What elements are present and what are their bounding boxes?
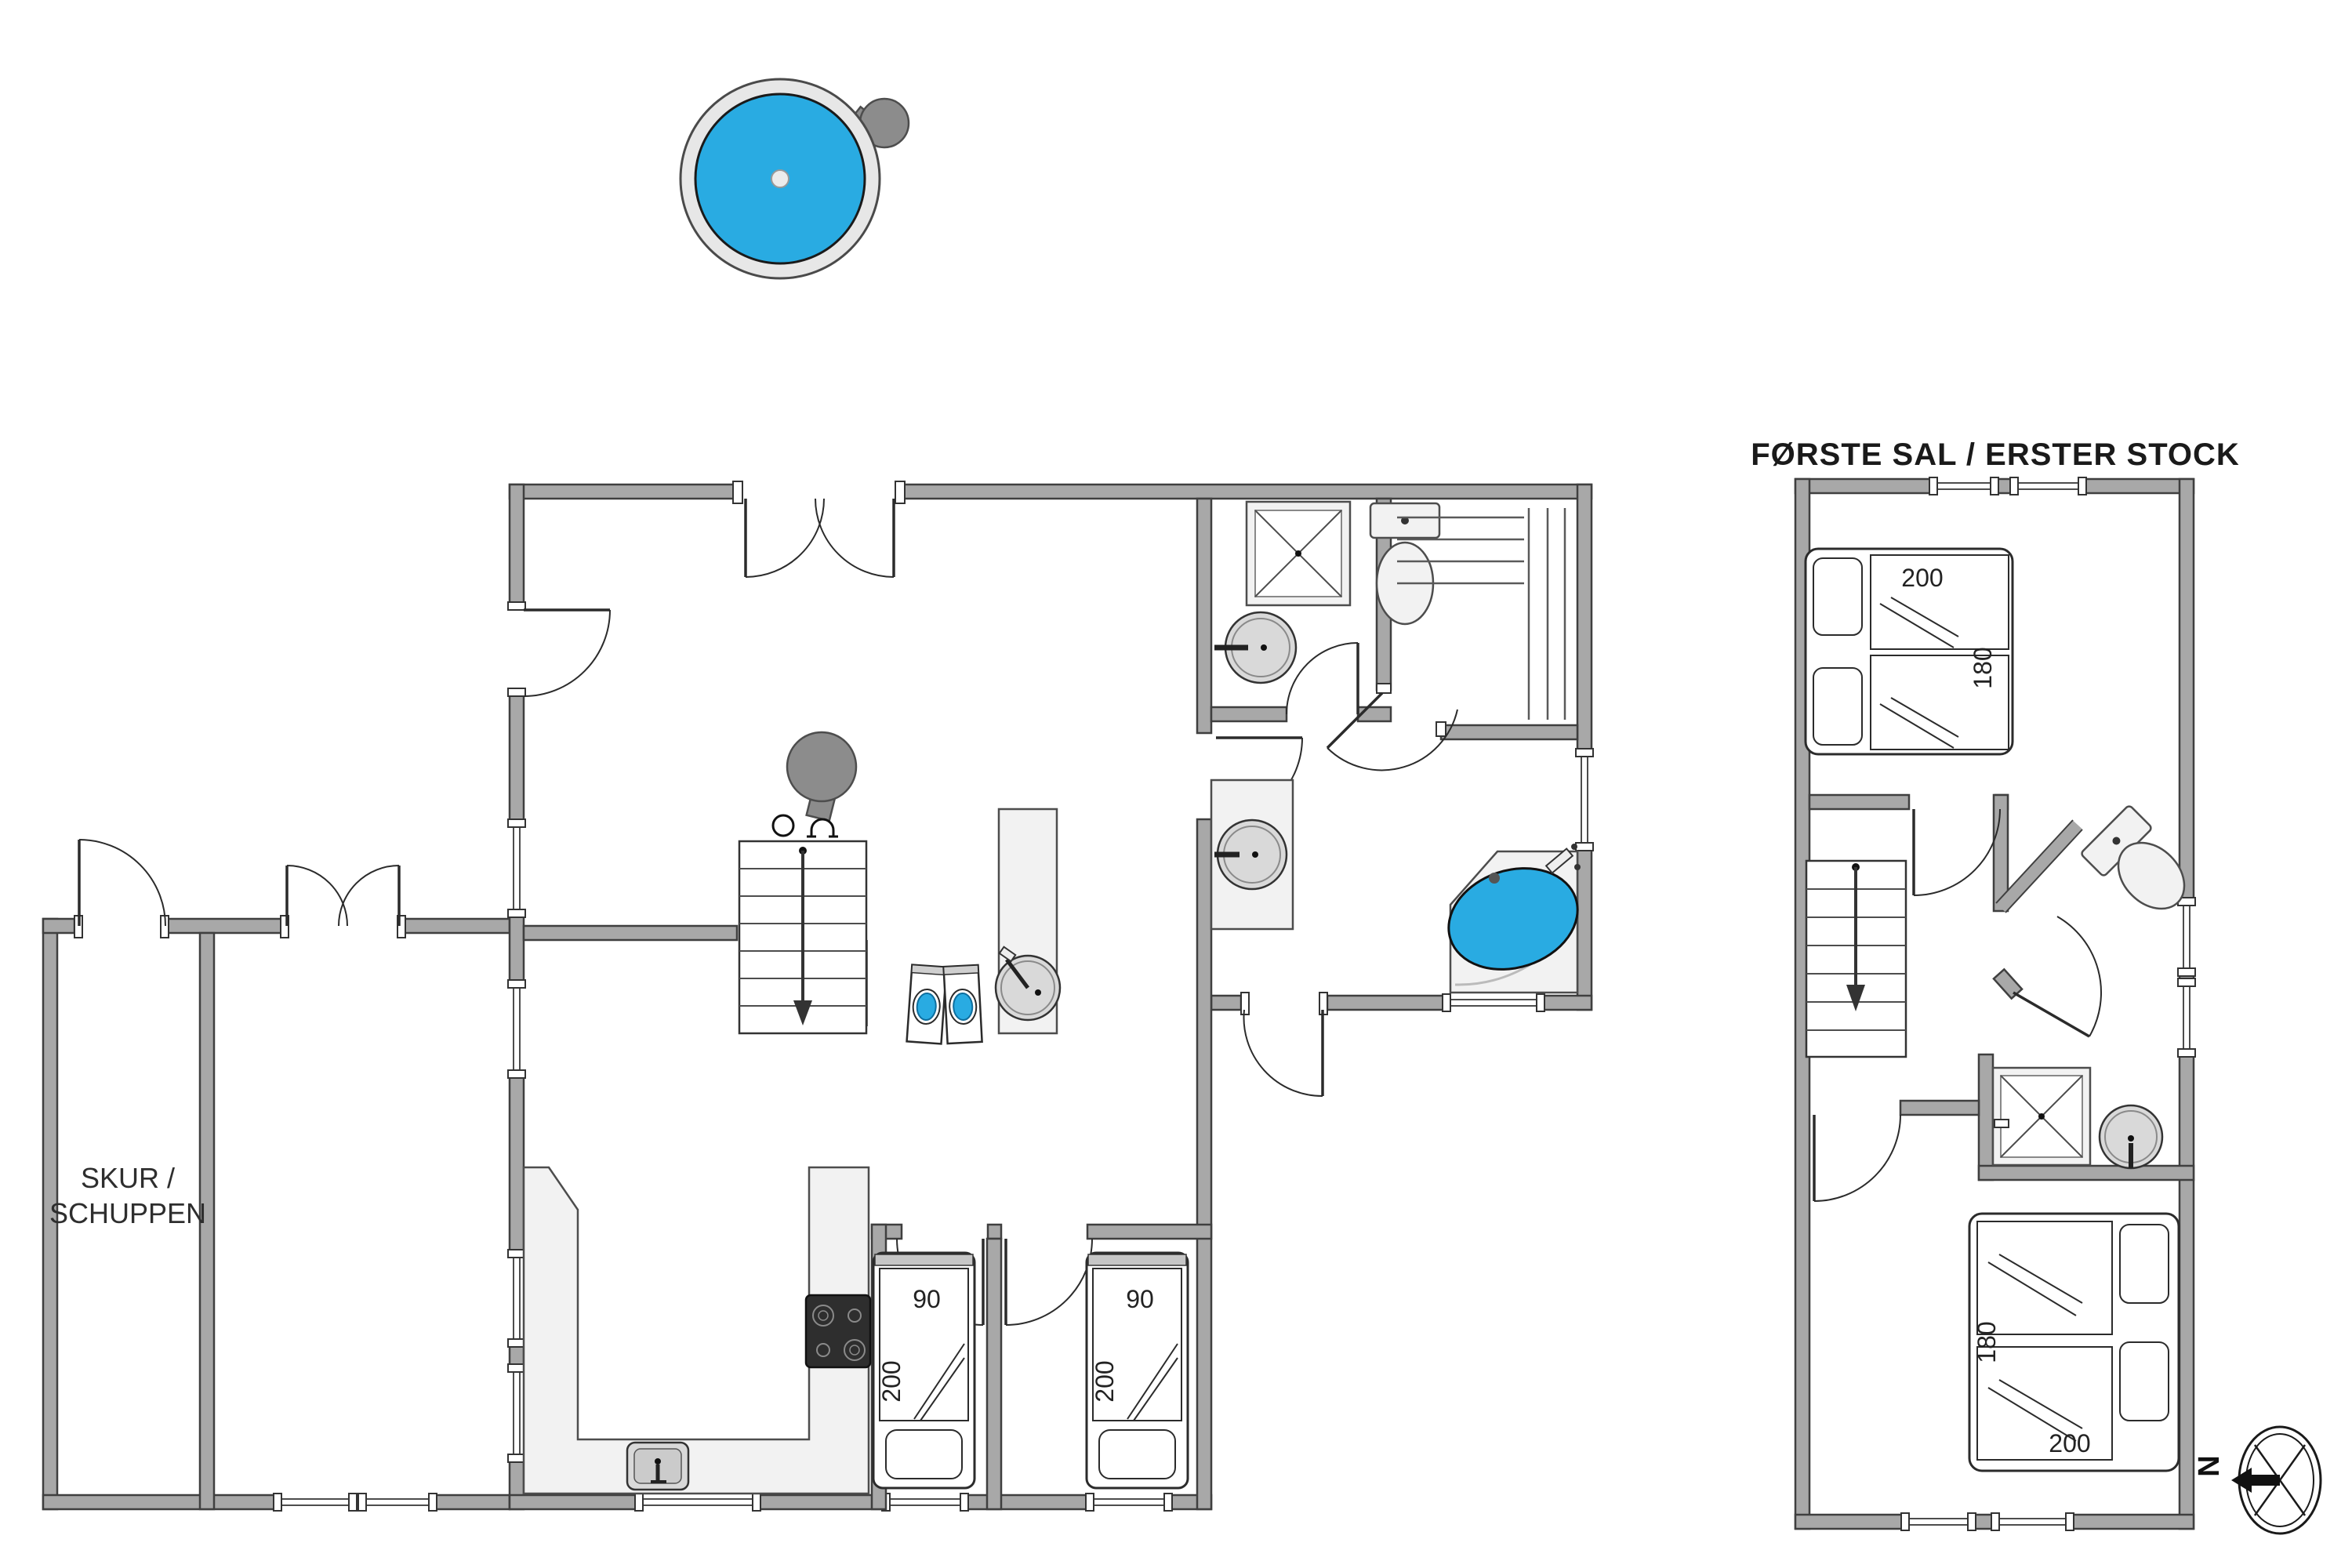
sink-bathroom-ground bbox=[1214, 612, 1296, 683]
sauna-door bbox=[1327, 684, 1457, 770]
bed-single-2: 90 200 bbox=[1087, 1253, 1188, 1488]
bath-wing-window-bottom bbox=[1443, 994, 1544, 1011]
bedroom1-window bbox=[882, 1494, 968, 1511]
upper-bottom-window-1 bbox=[1901, 1513, 1976, 1530]
left-window-2 bbox=[508, 980, 525, 1078]
upper-floor-plan: FØRSTE SAL / ERSTER STOCK bbox=[1751, 437, 2240, 1530]
washer-dryer bbox=[907, 965, 982, 1044]
compass-icon: N bbox=[2193, 1427, 2321, 1534]
left-window-4 bbox=[508, 1364, 525, 1462]
upper-bedroom3-door bbox=[1914, 809, 2000, 895]
bed2-width-label: 90 bbox=[1126, 1285, 1154, 1313]
island-counter bbox=[996, 809, 1060, 1033]
bed1-length-label: 200 bbox=[877, 1360, 906, 1402]
floorplan-canvas: SKUR / SCHUPPEN bbox=[0, 0, 2352, 1568]
bed4-width-label: 180 bbox=[1973, 1321, 2001, 1363]
cooktop bbox=[806, 1295, 870, 1367]
bath-wing-window-right bbox=[1576, 749, 1593, 851]
bed1-width-label: 90 bbox=[913, 1285, 941, 1313]
upper-floor-title: FØRSTE SAL / ERSTER STOCK bbox=[1751, 437, 2240, 472]
bed-double-4: 180 200 bbox=[1969, 1214, 2179, 1471]
upper-right-window-1 bbox=[2178, 898, 2195, 976]
upper-bottom-window-2 bbox=[1991, 1513, 2074, 1530]
bed2-length-label: 200 bbox=[1091, 1360, 1119, 1402]
bath-exterior-door bbox=[1241, 993, 1327, 1096]
upper-right-window-2 bbox=[2178, 978, 2195, 1057]
annex-window-1 bbox=[274, 1494, 357, 1511]
floorplan-svg: SKUR / SCHUPPEN bbox=[0, 0, 2352, 1568]
shower-upper bbox=[1993, 1068, 2090, 1165]
left-window-3 bbox=[508, 1250, 525, 1347]
living-left-door bbox=[508, 602, 610, 696]
kitchen-counter bbox=[524, 1167, 870, 1494]
wood-stove bbox=[787, 732, 856, 821]
bed3-width-label: 180 bbox=[1969, 647, 1997, 688]
bedroom2-door bbox=[1006, 1239, 1092, 1325]
upper-top-window-2 bbox=[2010, 477, 2086, 495]
shed-label-line2: SCHUPPEN bbox=[49, 1197, 206, 1229]
bathroom-door bbox=[1287, 643, 1358, 714]
upper-top-window-1 bbox=[1929, 477, 1998, 495]
hot-tub bbox=[681, 79, 909, 278]
entrance-double-door bbox=[733, 481, 905, 577]
sink-upper bbox=[2100, 1105, 2162, 1168]
bed3-length-label: 200 bbox=[1901, 564, 1943, 592]
shower-ground bbox=[1247, 502, 1350, 605]
stairs-ground bbox=[739, 815, 866, 1033]
annex-double-door bbox=[281, 866, 405, 938]
upper-bedroom4-door bbox=[1814, 1115, 1900, 1201]
shed-label-line1: SKUR / bbox=[81, 1162, 175, 1194]
bed-single-1: 90 200 bbox=[873, 1253, 975, 1488]
bed4-length-label: 200 bbox=[2049, 1429, 2090, 1457]
shed-door bbox=[74, 840, 169, 938]
bed-double-3: 200 180 bbox=[1806, 549, 2013, 754]
annex-window-2 bbox=[358, 1494, 437, 1511]
toilet-ground bbox=[1370, 503, 1439, 624]
dryer-door bbox=[953, 993, 973, 1020]
vanity-ground bbox=[1211, 780, 1293, 929]
bedroom2-window bbox=[1086, 1494, 1172, 1511]
kitchen-sink bbox=[627, 1443, 688, 1490]
compass-north-label: N bbox=[2193, 1455, 2226, 1476]
upper-bath-door bbox=[2013, 916, 2101, 1036]
dining-window bbox=[635, 1494, 760, 1511]
left-window-1 bbox=[508, 819, 525, 917]
stairs-upper bbox=[1806, 861, 1906, 1057]
corner-bath bbox=[1436, 844, 1591, 993]
annex-shed: SKUR / SCHUPPEN bbox=[43, 840, 510, 1511]
